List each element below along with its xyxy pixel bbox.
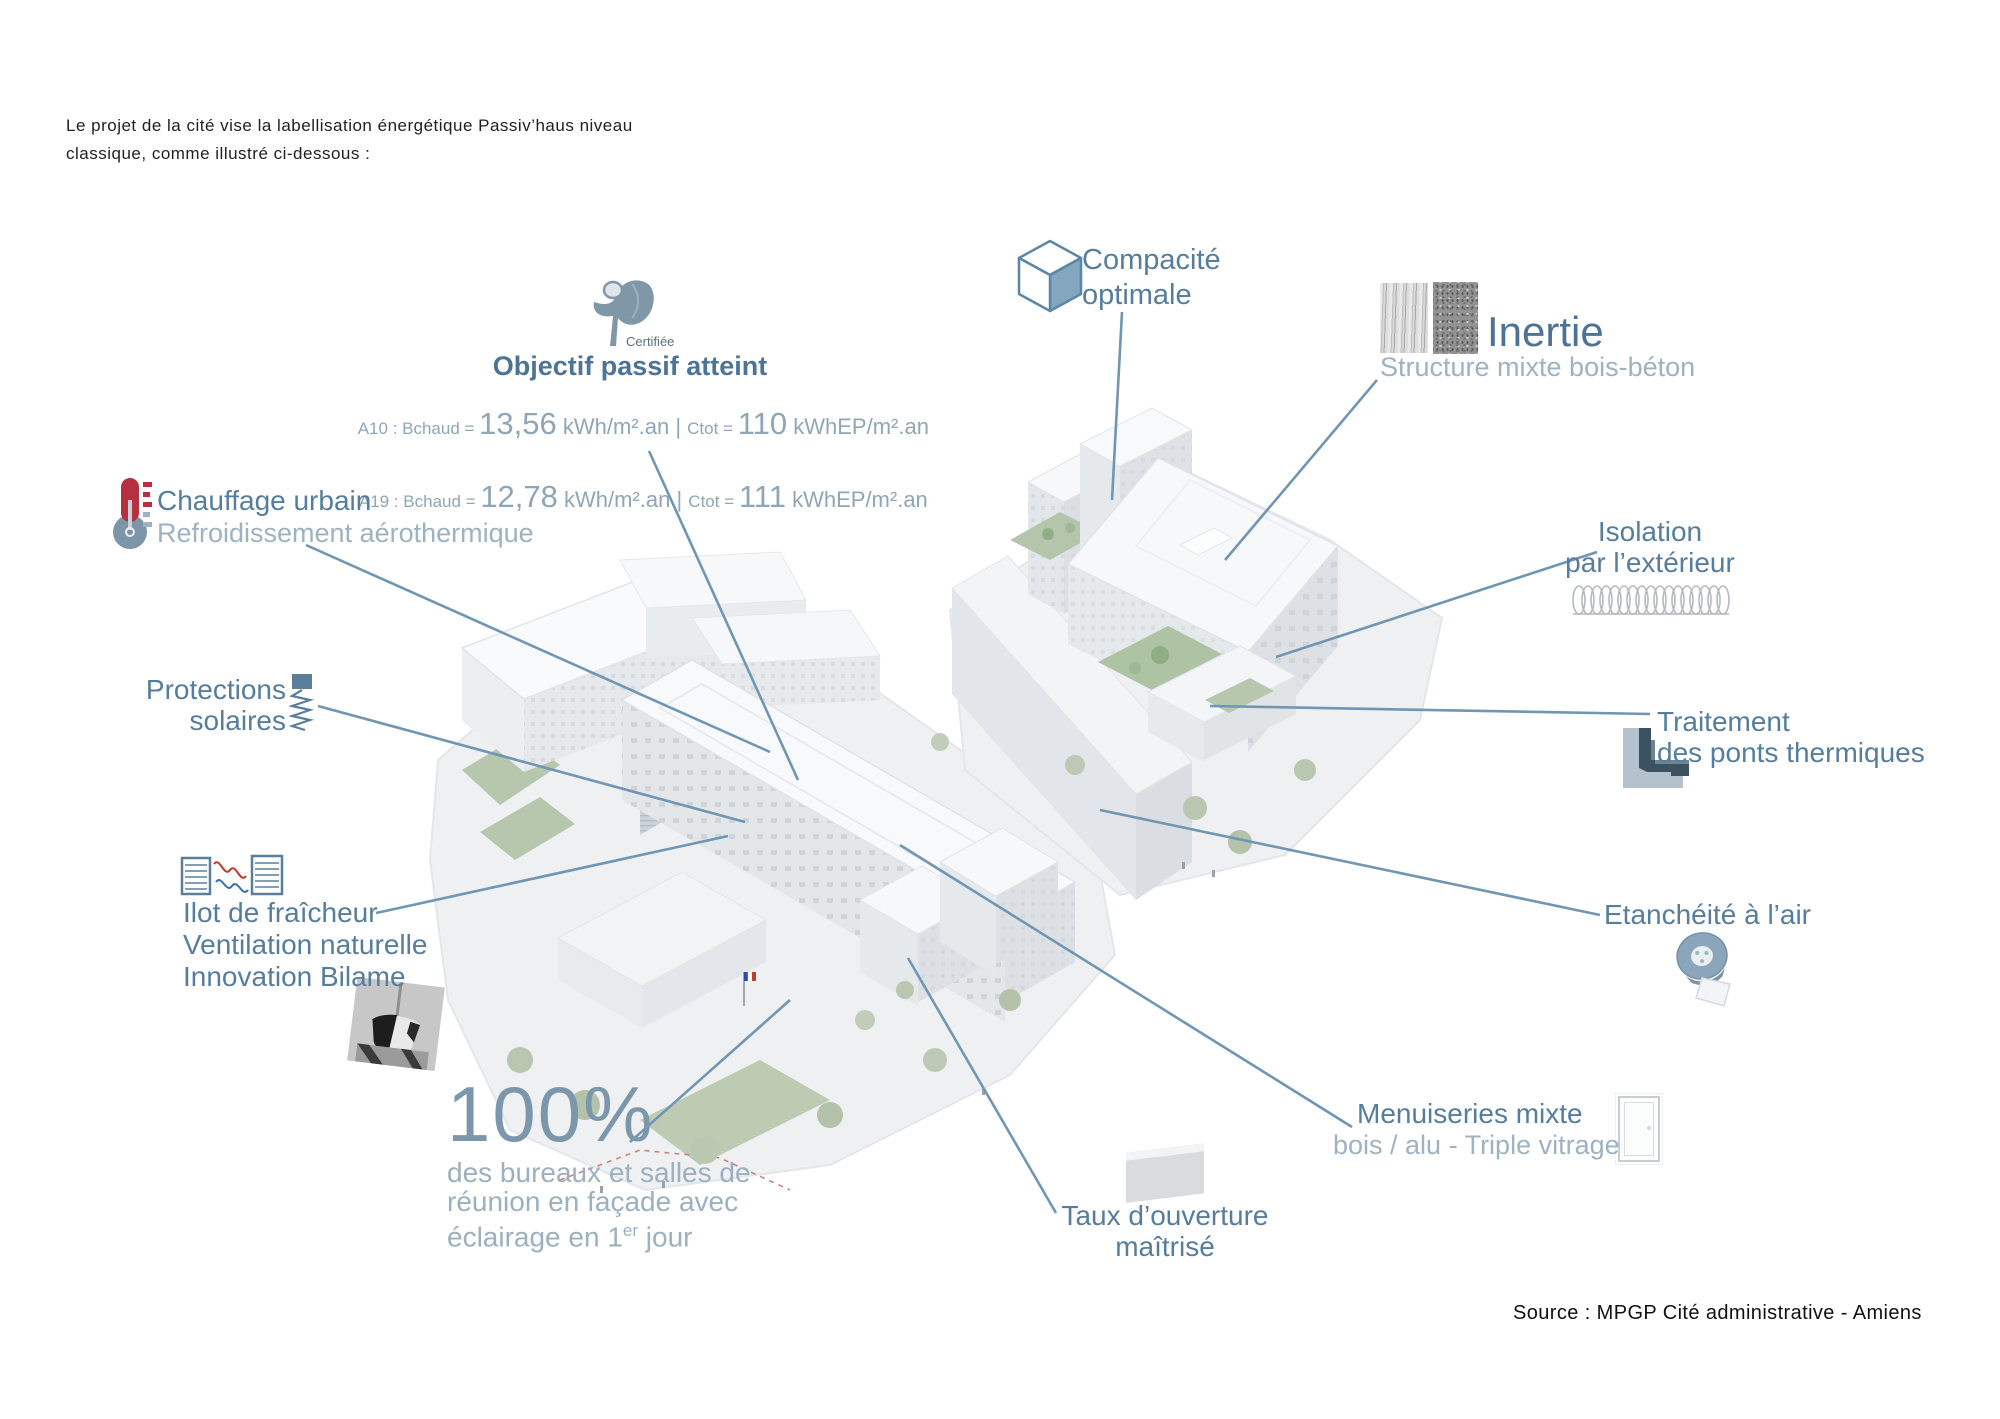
callout-compacite: Compacité optimale xyxy=(1082,243,1221,313)
callout-objectif: Objectif passif atteint A10 : Bchaud = 1… xyxy=(330,351,930,533)
daylight-value: 100% xyxy=(447,1078,751,1150)
callout-taux: Taux d’ouverture maîtrisé xyxy=(1040,1200,1290,1262)
wood-texture-swatch xyxy=(1380,283,1428,353)
tape-roll-icon xyxy=(1668,928,1748,1008)
stat-ctot-value: 110 xyxy=(738,406,787,441)
stat-heating-unit: kWh/m².an xyxy=(557,414,676,439)
callout-inertie-subtitle: Structure mixte bois-béton xyxy=(1380,352,1695,382)
stat-separator: | xyxy=(676,487,688,512)
stat-heating-value: 13,56 xyxy=(479,406,557,441)
cube-icon xyxy=(1016,238,1084,316)
insulation-coil-icon xyxy=(1571,584,1731,618)
certified-label: Certifiée xyxy=(626,334,674,349)
stat-prefix: A19 : Bchaud = xyxy=(359,492,480,511)
stat-heating-unit: kWh/m².an xyxy=(558,487,677,512)
callout-etancheite: Etanchéité à l’air xyxy=(1604,899,1811,930)
facade-thumbnail xyxy=(1126,1143,1204,1203)
callout-chauffage-title: Chauffage urbain xyxy=(157,485,371,516)
callout-menuiseries-subtitle: bois / alu - Triple vitrage xyxy=(1333,1130,1620,1160)
callout-menuiseries-title: Menuiseries mixte xyxy=(1357,1098,1583,1129)
daylight-line1: des bureaux et salles de xyxy=(447,1158,751,1187)
callout-traitement: Traitement des ponts thermiques xyxy=(1657,706,1925,768)
stat-ctot-label: Ctot = xyxy=(688,492,739,511)
cool-air-wave xyxy=(216,880,248,892)
stat-heating-value: 12,78 xyxy=(480,479,558,514)
callout-isolation: Isolation par l’extérieur xyxy=(1540,516,1760,578)
objectif-title: Objectif passif atteint xyxy=(330,351,930,382)
stat-prefix: A10 : Bchaud = xyxy=(358,419,479,438)
callout-inertie-title: Inertie xyxy=(1487,308,1604,356)
infographic-page: Le projet de la cité vise la labellisati… xyxy=(0,0,2000,1419)
thermometer-icon xyxy=(108,474,158,552)
callout-daylight: 100% des bureaux et salles de réunion en… xyxy=(447,1078,751,1251)
stat-ctot-value: 111 xyxy=(739,479,786,514)
roller-blind-icon xyxy=(289,674,315,732)
stat-separator: | xyxy=(675,414,687,439)
stat-ctot-unit: kWhEP/m².an xyxy=(786,487,928,512)
warm-air-wave xyxy=(214,862,246,878)
window-frame-icon xyxy=(1618,1096,1660,1162)
louver-vent-icon xyxy=(180,854,284,898)
stat-ctot-unit: kWhEP/m².an xyxy=(787,414,929,439)
concrete-texture-swatch xyxy=(1433,282,1478,354)
callout-ilot: Ilot de fraîcheur Ventilation naturelle … xyxy=(183,897,427,993)
daylight-line3: éclairage en 1er jour xyxy=(447,1216,751,1251)
stat-ctot-label: Ctot = xyxy=(687,419,738,438)
callout-chauffage-subtitle: Refroidissement aérothermique xyxy=(157,518,534,548)
callout-protections: Protections solaires xyxy=(118,674,286,736)
daylight-line2: réunion en façade avec xyxy=(447,1187,751,1216)
objectif-stat-a10: A10 : Bchaud = 13,56 kWh/m².an | Ctot = … xyxy=(330,388,930,460)
intro-text: Le projet de la cité vise la labellisati… xyxy=(66,112,706,167)
source-text: Source : MPGP Cité administrative - Amie… xyxy=(1513,1302,1922,1325)
